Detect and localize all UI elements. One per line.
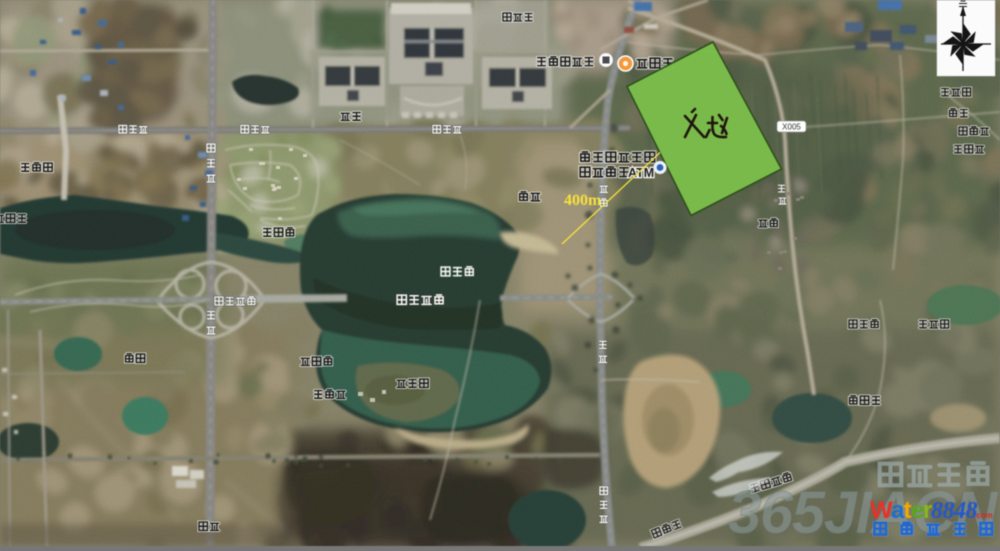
svg-text:8848: 8848: [931, 498, 978, 524]
svg-text:400m: 400m: [564, 192, 602, 209]
svg-text:.com: .com: [974, 511, 993, 520]
svg-text:W: W: [870, 497, 893, 524]
svg-text:X005: X005: [782, 123, 801, 132]
